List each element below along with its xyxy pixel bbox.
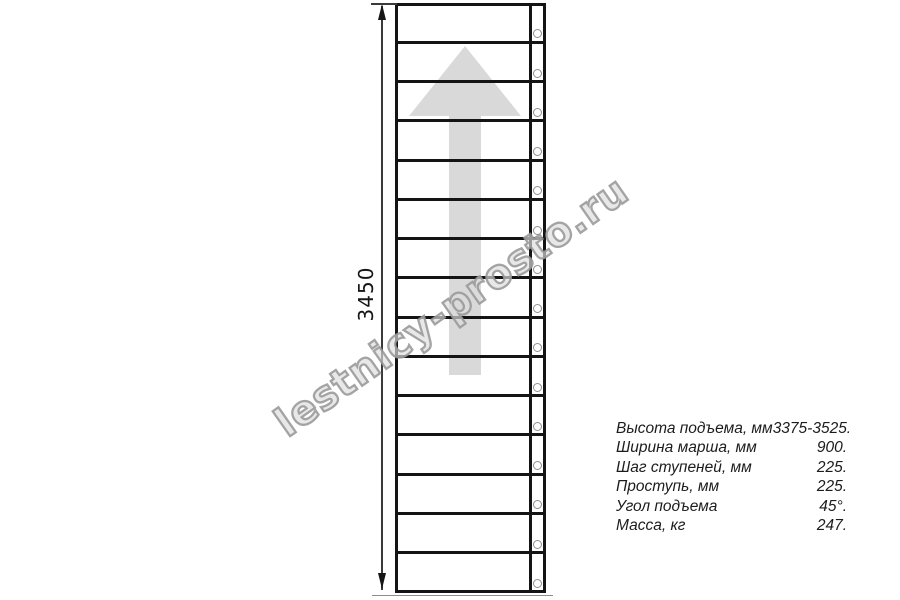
dimension-line [381, 6, 383, 590]
spec-label: Масса, кг [616, 516, 685, 535]
dimension-extension-line-bottom [372, 595, 553, 596]
tread-line [395, 355, 546, 358]
spec-value: 45°. [819, 497, 847, 516]
tread-line [395, 237, 546, 240]
baluster-circle [533, 265, 542, 274]
baluster-circle [533, 147, 542, 156]
tread-line [395, 394, 546, 397]
spec-row: Проступь, мм225. [616, 477, 847, 496]
spec-label: Ширина марша, мм [616, 438, 757, 457]
specs-table: Высота подъема, мм3375-3525.Ширина марша… [616, 419, 847, 535]
baluster-circle [533, 383, 542, 392]
tread-line [395, 159, 546, 162]
spec-row: Высота подъема, мм3375-3525. [616, 419, 847, 438]
dimension-arrowhead-bottom-icon [378, 573, 386, 589]
tread-line [395, 41, 546, 44]
baluster-circle [533, 540, 542, 549]
spec-row: Шаг ступеней, мм225. [616, 458, 847, 477]
tread-line [395, 198, 546, 201]
spec-label: Шаг ступеней, мм [616, 458, 752, 477]
spec-label: Проступь, мм [616, 477, 719, 496]
spec-value: 225. [817, 458, 847, 477]
spec-label: Высота подъема, мм [616, 419, 773, 438]
tread-line [395, 276, 546, 279]
spec-row: Ширина марша, мм900. [616, 438, 847, 457]
tread-line [395, 316, 546, 319]
tread-line [395, 473, 546, 476]
stair-stringer-divider [529, 3, 532, 593]
dimension-arrowhead-top-icon [378, 4, 386, 20]
spec-row: Масса, кг247. [616, 516, 847, 535]
baluster-circle [533, 422, 542, 431]
baluster-circle [533, 579, 542, 588]
spec-label: Угол подъема [616, 497, 717, 516]
tread-line [395, 119, 546, 122]
stair-plan-screenshot: 3450 lestnicy-prosto.ru Высота подъема, … [0, 0, 900, 600]
spec-value: 247. [817, 516, 847, 535]
spec-value: 3375-3525. [773, 419, 851, 438]
spec-value: 900. [817, 438, 847, 457]
stair-flight-outline [395, 3, 546, 593]
tread-line [395, 433, 546, 436]
baluster-circle [533, 69, 542, 78]
tread-line [395, 551, 546, 554]
baluster-circle [533, 226, 542, 235]
baluster-circle [533, 108, 542, 117]
tread-line [395, 80, 546, 83]
spec-value: 225. [817, 477, 847, 496]
spec-row: Угол подъема45°. [616, 497, 847, 516]
dimension-label: 3450 [354, 267, 378, 322]
tread-line [395, 512, 546, 515]
